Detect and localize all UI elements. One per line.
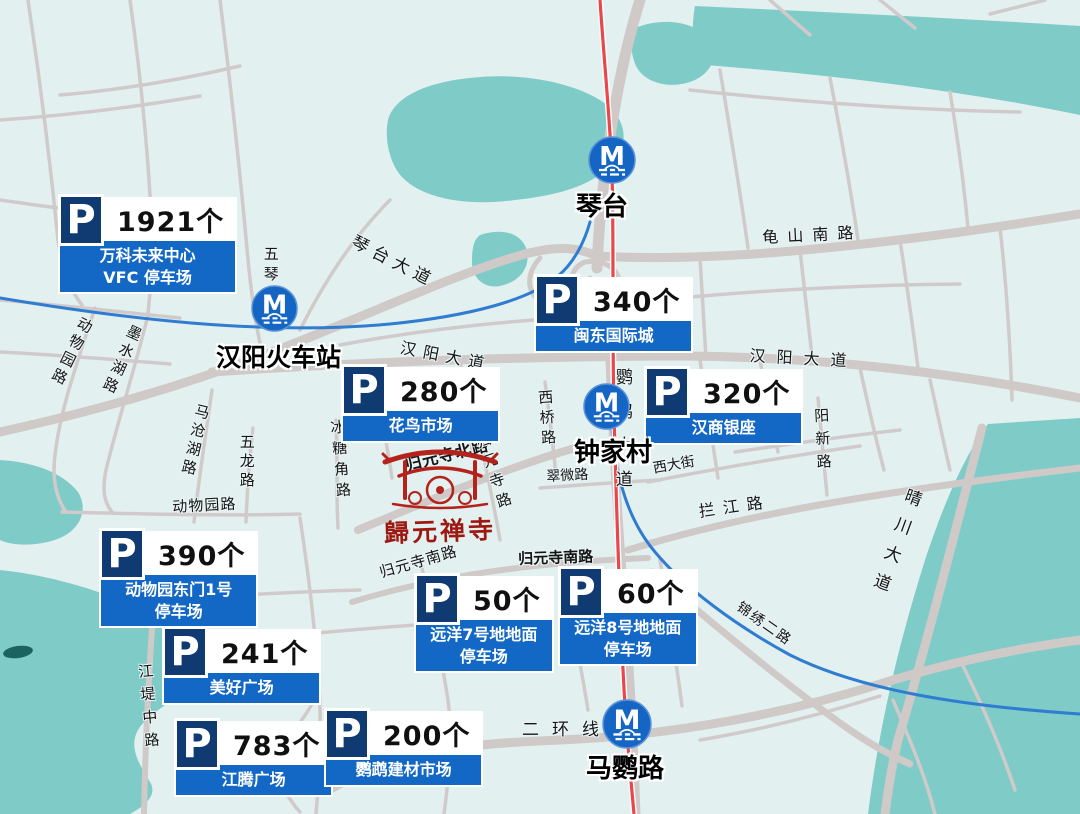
road-label: 翠微路 [546, 468, 589, 485]
parking-count: 241个 [208, 629, 321, 673]
yangtze-river [868, 418, 1080, 814]
parking-icon: P [558, 566, 604, 618]
road-label: 动物园路 [172, 497, 237, 516]
metro-station-icon: M [251, 285, 298, 336]
han-river [693, 6, 1080, 115]
parking-count: 340个 [580, 277, 693, 321]
metro-station-icon: M [588, 136, 636, 188]
parking-count: 50个 [460, 576, 554, 620]
parking-badge: P 1921个 万科未来中心 VFC 停车场 [58, 194, 237, 294]
road-label: 归元寺南路 [518, 549, 594, 567]
road-label: 五龙路 [238, 434, 254, 491]
metro-station-label: 马鹦路 [586, 748, 664, 785]
parking-count: 60个 [604, 569, 698, 613]
metro-station-icon: M [583, 383, 630, 434]
parking-icon: P [534, 274, 580, 326]
parking-badge: P 783个 江腾广场 [174, 718, 333, 797]
parking-icon: P [174, 718, 220, 770]
road-label: 阳新路 [812, 407, 831, 477]
parking-count: 200个 [370, 711, 483, 755]
parking-badge: P 50个 远洋7号地地面 停车场 [414, 573, 554, 673]
parking-icon: P [644, 366, 690, 418]
parking-badge: P 280个 花鸟市场 [341, 364, 500, 443]
svg-text:M: M [262, 290, 287, 320]
parking-badge: P 390个 动物园东门1号 停车场 [99, 528, 258, 628]
parking-count: 1921个 [104, 197, 237, 241]
parking-name: 远洋7号地地面 停车场 [414, 618, 554, 673]
svg-text:M: M [599, 142, 625, 172]
road-label: 五琴 [262, 246, 278, 286]
metro-station-icon: M [602, 699, 652, 753]
parking-count: 783个 [220, 721, 333, 765]
parking-name: 万科未来中心 VFC 停车场 [58, 239, 237, 294]
parking-name: 远洋8号地地面 停车场 [558, 611, 698, 666]
metro-station-label: 琴台 [576, 186, 628, 223]
temple-gate-icon [375, 440, 505, 512]
parking-badge: P 241个 美好广场 [162, 626, 321, 705]
parking-count: 320个 [690, 369, 803, 413]
parking-icon: P [341, 364, 387, 416]
parking-icon: P [162, 626, 208, 678]
parking-icon: P [324, 708, 370, 760]
metro-station-label: 钟家村 [574, 432, 652, 469]
road-label: 西桥路 [536, 389, 556, 450]
metro-station-label: 汉阳火车站 [216, 338, 341, 374]
parking-icon: P [58, 194, 104, 246]
parking-badge: P 60个 远洋8号地地面 停车场 [558, 566, 698, 666]
parking-icon: P [414, 573, 460, 625]
temple-name: 歸元禅寺 [369, 510, 510, 551]
map-canvas: 琴台大道 龟山南路 汉阳大道 汉阳大道 五琴 动物园路 墨水湖路 马沧湖路 五龙… [0, 0, 1080, 814]
parking-count: 390个 [145, 531, 258, 575]
parking-badge: P 200个 鹦鹉建材市场 [324, 708, 483, 787]
parking-badge: P 340个 闽东国际城 [534, 274, 693, 353]
road-label: 二环线 [522, 722, 612, 740]
parking-name: 动物园东门1号 停车场 [99, 573, 258, 628]
parking-badge: P 320个 汉商银座 [644, 366, 803, 445]
svg-text:M: M [594, 388, 619, 418]
parking-count: 280个 [387, 367, 500, 411]
temple-landmark: 歸元禅寺 [370, 440, 510, 548]
parking-icon: P [99, 528, 145, 580]
svg-text:M: M [614, 705, 641, 736]
